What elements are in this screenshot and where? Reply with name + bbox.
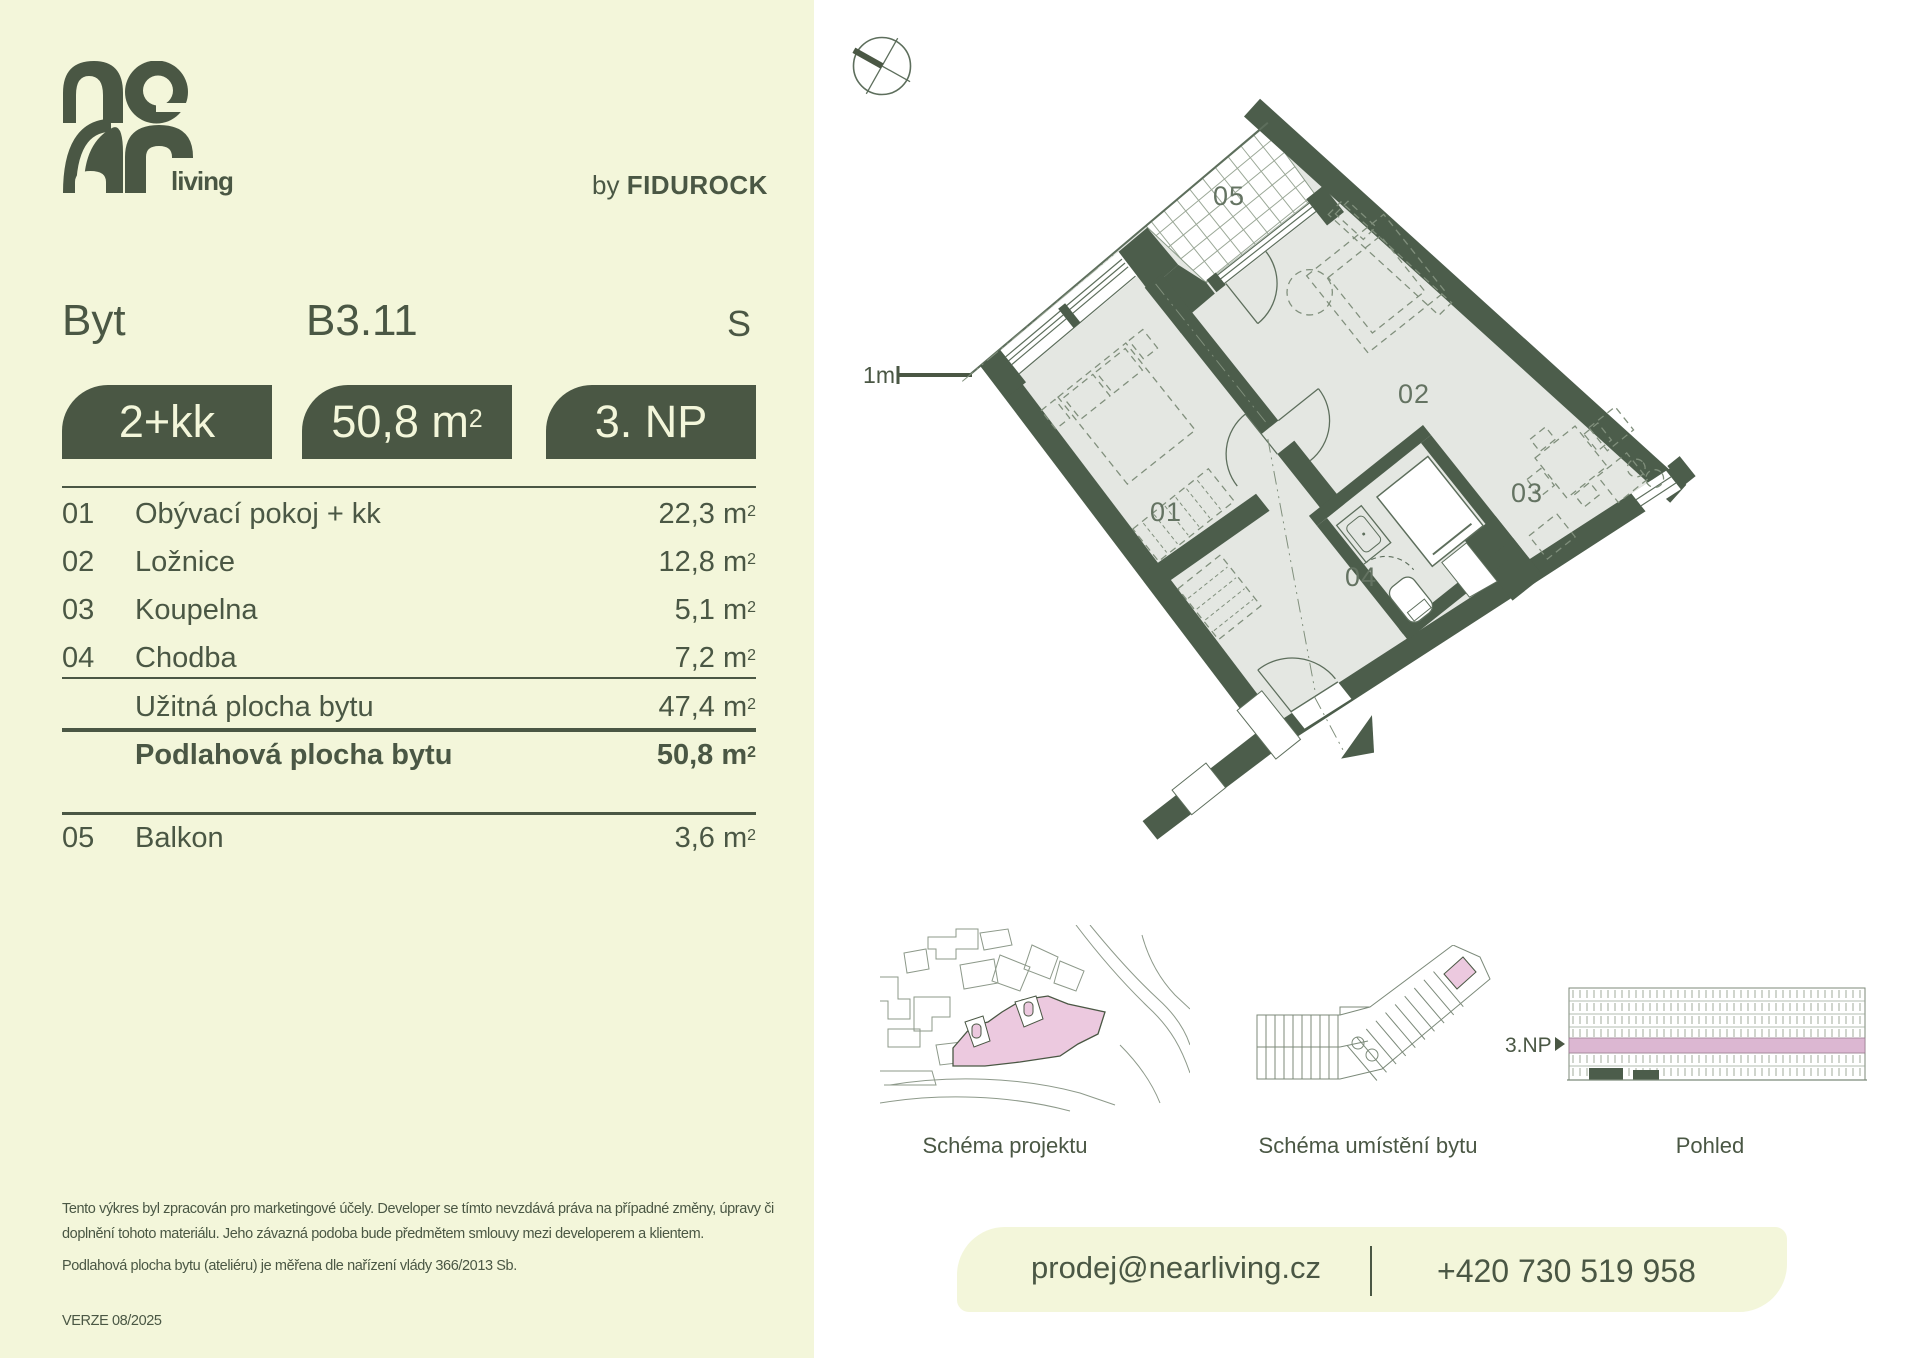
svg-text:3.NP: 3.NP	[1505, 1034, 1552, 1057]
